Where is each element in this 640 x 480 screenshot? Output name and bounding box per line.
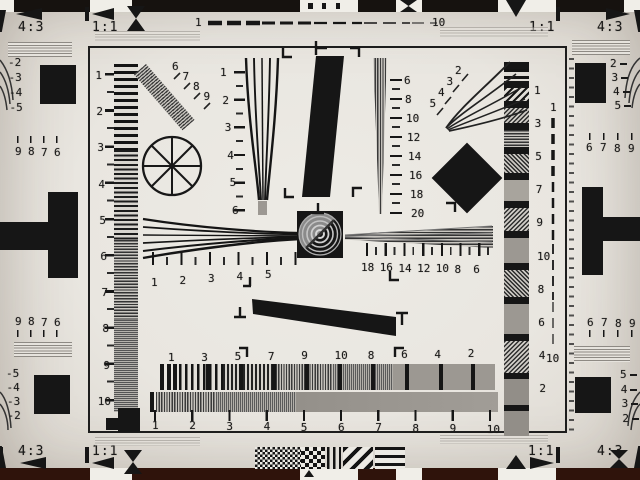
pattern-segment [446,203,455,212]
margin-digit: 7 [600,141,607,154]
margin-wedge-label: 2 [610,57,627,70]
pattern-segment [285,188,294,197]
margin-digit: 7 [41,316,48,329]
pattern-segment [143,235,300,236]
fan-label: 8 [193,80,200,93]
trumpet-scale-label: 1 [220,66,227,79]
slanted-bar-vertical [302,56,344,197]
right-burst-label: 1 [534,84,541,97]
h-wedge-label: 14 [398,262,411,275]
pattern-segment [446,74,516,128]
h-wedge-label: 8 [455,263,462,276]
margin-digit: 8 [28,145,35,158]
bottom-burst-label: 1 [168,351,175,364]
margin-wedge-label: 2 [622,412,639,425]
vertical-wedge-scale-label: 20 [411,207,424,220]
pattern-segment [312,203,324,213]
pattern-segment [204,103,210,109]
h-wedge-label: 18 [361,261,374,274]
bottom-ruler-label: 8 [412,422,419,435]
margin-digit: 6 [54,316,61,329]
margin-wedge-label: 3 [612,71,629,84]
right-burst-label: 8 [538,283,545,296]
h-wedge-label: 4 [237,270,244,283]
bottom-ruler-label: 7 [375,421,382,434]
vertical-wedge-scale-label: 10 [406,112,419,125]
bottom-burst-label: 8 [368,349,375,362]
margin-digit: 7 [41,146,48,159]
fan-label: 2 [455,64,462,77]
bottom-burst-label: 7 [268,350,275,363]
slanted-bar-horizontal [252,299,396,336]
right-burst-label: 5 [535,150,542,163]
margin-wedge-label: -5 [10,101,23,114]
right-dashed-end: 10 [546,352,559,365]
trumpet-scale-label: 6 [232,204,239,217]
upper-right-fan-curves [437,62,527,131]
right-burst-label: 4 [539,349,546,362]
margin-digit: 8 [615,317,622,330]
right-burst-label: 9 [536,216,543,229]
right-burst-label: 10 [537,250,550,263]
h-wedge-label: 1 [151,276,158,289]
pattern-segment [350,48,359,57]
fan-label: 9 [204,90,211,103]
horizontal-wedge-left-curves [143,219,300,258]
pattern-segment [462,74,468,81]
bottom-ruler-label: 5 [301,421,308,434]
bottom-ruler-label: 1 [152,419,159,432]
margin-digit: 7 [601,316,608,329]
margin-digit: 6 [587,316,594,329]
bottom-burst-label: 2 [468,347,475,360]
pattern-segment [345,226,492,242]
left-ruler-label: 10 [95,395,111,408]
pattern-segment [194,93,200,99]
fan-label: 6 [172,60,179,73]
bottom-burst-label: 9 [301,349,308,362]
pattern-segment [0,86,7,110]
bottom-ruler-label: 2 [189,419,196,432]
margin-wedge-label: 4 [613,85,630,98]
left-ruler-label: 7 [92,286,108,299]
vertical-wedge-scale-label: 12 [407,131,420,144]
bottom-ruler-label: 9 [450,422,457,435]
vertical-wedge-scale-label: 16 [409,169,422,182]
bottom-ruler-label: 4 [264,420,271,433]
left-ruler-label: 2 [87,105,103,118]
pattern-segment [632,84,640,108]
bottom-ruler-label: 10 [487,423,500,436]
bottom-ruler-label: 3 [226,420,233,433]
right-burst-label: 2 [539,382,546,395]
right-burst-label: 3 [535,117,542,130]
bottom-burst-label: 6 [401,348,408,361]
top-ruler-end: 10 [432,16,445,29]
trumpet-scale-label: 3 [225,121,232,134]
margin-digit: 6 [586,141,593,154]
margin-wedge-label: -2 [8,409,21,422]
pattern-segment [143,219,300,233]
vertical-wedge-scale-label: 6 [404,74,411,87]
margin-wedge-label: 3 [622,397,639,410]
trumpet-scale-label: 2 [222,94,229,107]
h-wedge-label: 6 [473,263,480,276]
left-ruler-label: 6 [91,250,107,263]
vertical-trumpet-wedge [246,58,278,200]
margin-digit: 9 [629,317,636,330]
vertical-wedge-scale-label: 18 [410,188,423,201]
pattern-segment [243,277,251,286]
margin-wedge-label: 4 [621,383,638,396]
margin-digit: 9 [628,142,635,155]
left-ruler-label: 4 [89,178,105,191]
pattern-segment [316,41,327,55]
margin-digit: 8 [614,142,621,155]
left-ruler-label: 3 [88,141,104,154]
pattern-segment [283,48,292,57]
margin-wedge-label: -5 [6,367,19,380]
h-wedge-label: 10 [436,262,449,275]
pattern-segment [445,97,451,104]
right-burst-label: 6 [538,316,545,329]
top-ruler-start: 1 [195,16,202,29]
margin-wedge-label: -4 [7,381,20,394]
margin-digit: 6 [54,146,61,159]
pattern-segment [353,188,362,197]
right-burst-label: 7 [536,183,543,196]
margin-digit: 9 [15,315,22,328]
bottom-burst-label: 10 [335,349,348,362]
bottom-burst-label: 3 [201,351,208,364]
pattern-segment [234,307,246,317]
h-wedge-label: 2 [180,274,187,287]
h-wedge-label: 3 [208,272,215,285]
pattern-segment [396,313,408,325]
margin-digit: 8 [28,315,35,328]
bottom-burst-label: 5 [235,350,242,363]
margin-wedge-label: -3 [9,71,22,84]
left-ruler-label: 1 [86,69,102,82]
left-ruler-label: 5 [90,214,106,227]
h-wedge-label: 16 [380,261,393,274]
pattern-segment [437,108,443,115]
fan-label: 7 [183,70,190,83]
vertical-wedge-scale-label: 14 [408,150,421,163]
h-wedge-label: 12 [417,262,430,275]
pattern-segment [453,85,459,92]
spoked-circle-icon [143,137,201,195]
test-chart-photo: 4:3 1:1 1:1 4:3 4:3 1:1 1:1 4:3 [0,0,640,480]
bottom-ruler-label: 6 [338,421,345,434]
pattern-segment [262,58,263,200]
pattern-segment [184,83,190,89]
pattern-segment [174,73,180,79]
margin-wedge-label: -3 [7,395,20,408]
h-wedge-label: 5 [265,268,272,281]
vertical-wedge-scale-label: 8 [405,93,412,106]
margin-wedge-label: -2 [8,56,21,69]
pattern-segment [345,237,492,242]
trumpet-scale-label: 4 [227,149,234,162]
margin-wedge-label: -4 [9,86,22,99]
left-ruler-label: 8 [93,322,109,335]
margin-wedge-label: 5 [615,99,632,112]
trumpet-scale-label: 5 [230,176,237,189]
margin-digit: 9 [15,145,22,158]
left-ruler-label: 9 [94,359,110,372]
margin-wedge-label: 5 [620,368,637,381]
fan-label: 4 [438,86,445,99]
fan-label: 5 [430,97,437,110]
bottom-burst-label: 4 [434,348,441,361]
right-dashed-start: 1 [550,101,557,114]
fan-label: 3 [447,75,454,88]
